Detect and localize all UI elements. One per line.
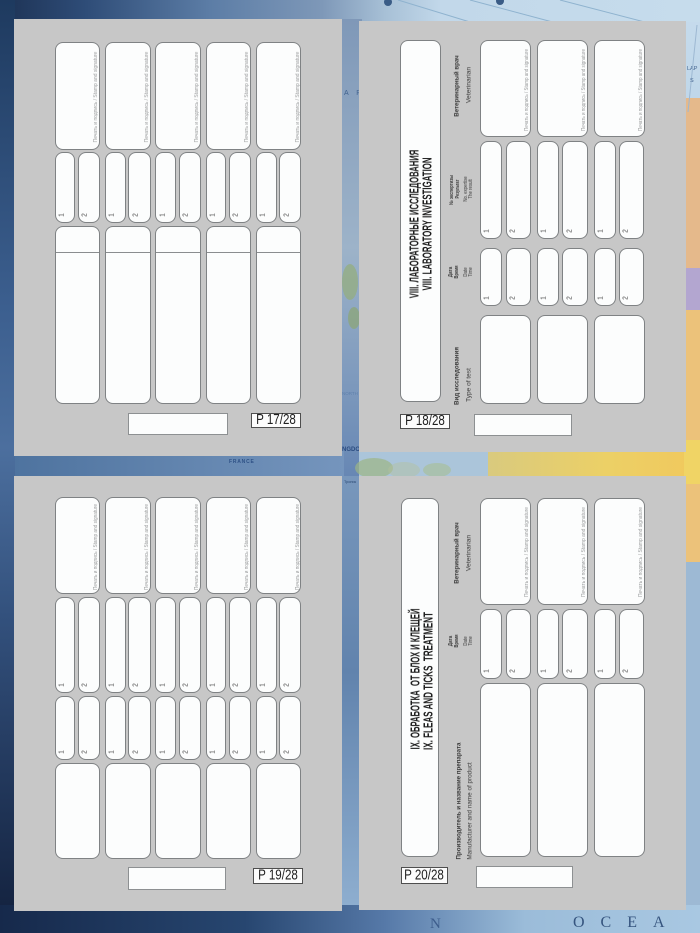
svg-text:N: N xyxy=(430,916,451,932)
svg-text:Тропик: Тропик xyxy=(344,480,357,484)
svg-text:FRANCE: FRANCE xyxy=(229,459,255,465)
svg-text:S: S xyxy=(690,78,694,84)
svg-text:NORTH: NORTH xyxy=(342,391,358,396)
svg-text:NGDO: NGDO xyxy=(342,447,360,453)
svg-text:OCEA: OCEA xyxy=(573,914,681,931)
